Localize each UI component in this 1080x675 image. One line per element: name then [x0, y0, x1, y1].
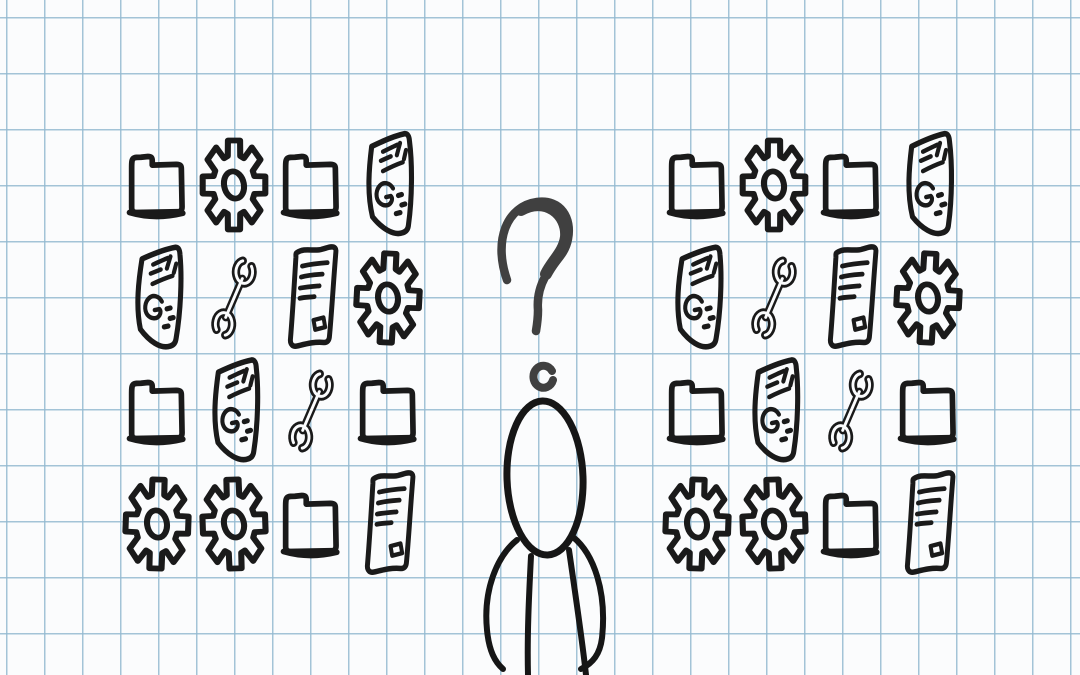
g-glyph: [375, 182, 393, 205]
document-with-g-icon: [737, 353, 811, 468]
grid-cell-gear: [658, 467, 735, 580]
folder-icon: [121, 371, 192, 450]
grid-cell-document-g: [658, 241, 735, 354]
grid-cell-document-g: [735, 354, 812, 467]
grid-cell-folder: [272, 467, 349, 580]
document-with-g-icon: [661, 240, 733, 354]
grid-cell-folder: [889, 354, 966, 467]
grid-cell-folder: [272, 128, 349, 241]
square-mark: [853, 317, 865, 330]
wrench-icon: [202, 248, 266, 348]
grid-cell-document-lines: [812, 241, 889, 354]
grid-cell-gear: [735, 128, 812, 241]
folder-icon: [815, 484, 886, 563]
square-mark: [390, 543, 402, 556]
gear-icon: [736, 131, 812, 239]
gear-icon: [347, 242, 429, 354]
grid-cell-document-lines: [889, 467, 966, 580]
g-glyph: [221, 408, 239, 431]
gear-icon: [734, 468, 814, 579]
person-body-line-left: [528, 556, 531, 675]
document-with-g-icon: [197, 353, 271, 468]
stick-person: [486, 400, 603, 675]
icon-grid-left: [118, 128, 426, 580]
grid-cell-document-g: [889, 128, 966, 241]
folder-icon: [661, 145, 732, 224]
gear-hole: [916, 283, 939, 312]
grid-cell-gear: [349, 241, 426, 354]
confused-person-figure: [467, 190, 632, 675]
grid-cell-document-g: [349, 128, 426, 241]
person-arm-left: [486, 540, 517, 669]
gear-hole: [221, 508, 246, 539]
grid-cell-document-g: [195, 354, 272, 467]
square-mark: [313, 317, 325, 330]
grid-cell-gear: [118, 467, 195, 580]
document-with-lines-icon: [276, 241, 346, 353]
grid-cell-document-g: [118, 241, 195, 354]
question-mark-icon: [502, 202, 569, 388]
folder-icon: [275, 484, 346, 563]
gear-icon: [887, 242, 969, 354]
grid-cell-document-lines: [272, 241, 349, 354]
grid-cell-gear: [195, 467, 272, 580]
gear-icon: [194, 468, 274, 579]
gear-hole: [761, 508, 786, 539]
grid-cell-folder: [812, 467, 889, 580]
g-glyph: [684, 295, 702, 318]
wrench-icon: [279, 361, 343, 461]
question-mark-dot: [533, 366, 553, 388]
document-with-g-icon: [121, 240, 193, 354]
grid-cell-wrench: [735, 241, 812, 354]
gear-hole: [685, 509, 709, 539]
document-with-lines-icon: [353, 467, 423, 579]
folder-icon: [352, 371, 423, 450]
gear-hole: [761, 169, 785, 199]
person-body-line-right: [569, 550, 586, 675]
sketch-canvas: [0, 0, 1080, 675]
g-glyph: [144, 295, 162, 318]
folder-icon: [892, 371, 963, 450]
grid-cell-gear: [195, 128, 272, 241]
grid-cell-folder: [349, 354, 426, 467]
gear-icon: [196, 131, 272, 239]
gear-hole: [221, 169, 245, 199]
document-with-lines-icon: [893, 467, 963, 579]
grid-cell-wrench: [812, 354, 889, 467]
square-mark: [930, 543, 942, 556]
person-head: [504, 400, 585, 557]
document-with-g-icon: [890, 126, 966, 242]
g-glyph: [761, 408, 779, 431]
folder-icon: [661, 371, 732, 450]
g-glyph: [915, 182, 933, 205]
folder-icon: [121, 145, 192, 224]
gear-hole: [145, 509, 169, 539]
grid-cell-folder: [658, 354, 735, 467]
grid-cell-folder: [658, 128, 735, 241]
grid-cell-folder: [118, 354, 195, 467]
wrench-icon: [742, 248, 806, 348]
grid-cell-folder: [118, 128, 195, 241]
grid-cell-gear: [889, 241, 966, 354]
grid-cell-gear: [735, 467, 812, 580]
document-with-g-icon: [350, 126, 426, 242]
grid-cell-folder: [812, 128, 889, 241]
gear-icon: [657, 468, 737, 579]
icon-grid-right: [658, 128, 966, 580]
wrench-icon: [819, 361, 883, 461]
gear-hole: [376, 283, 399, 312]
document-with-lines-icon: [816, 241, 886, 353]
folder-icon: [275, 145, 346, 224]
folder-icon: [815, 145, 886, 224]
grid-cell-wrench: [195, 241, 272, 354]
grid-cell-wrench: [272, 354, 349, 467]
gear-icon: [117, 468, 197, 579]
grid-cell-document-lines: [349, 467, 426, 580]
